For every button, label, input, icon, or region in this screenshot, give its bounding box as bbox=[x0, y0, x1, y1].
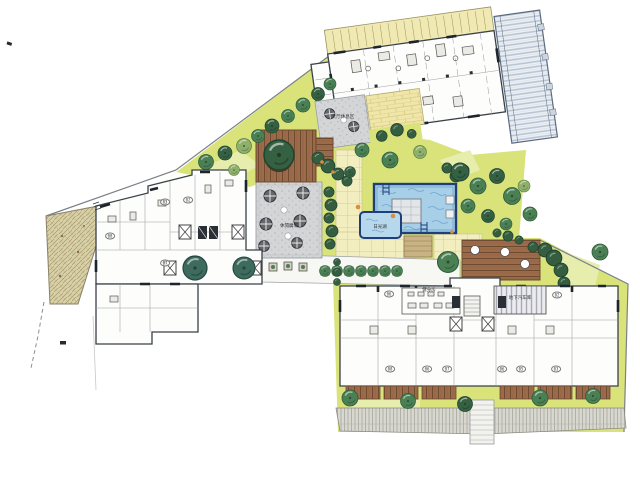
center-path bbox=[470, 400, 494, 444]
garage-ramp-label: 地下汽车库 bbox=[509, 297, 532, 302]
leisure-plaza bbox=[256, 182, 322, 258]
site-plan-drawing bbox=[0, 0, 640, 477]
unit-number: 02 bbox=[183, 197, 193, 204]
leisure-plaza-label: 休閒廣場 bbox=[280, 225, 298, 230]
unit-number: 08 bbox=[105, 233, 115, 240]
site-plan-canvas: 大厅休息区 休閒廣場 日光湖 健身房 地下汽车库 08 03 02 07 06 … bbox=[0, 0, 640, 477]
unit-number: 06 bbox=[422, 366, 432, 373]
unit-number: 02 bbox=[552, 292, 562, 299]
kids-pool-label: 日光湖 bbox=[373, 226, 387, 231]
stone-slope bbox=[46, 206, 98, 304]
unit-number: 06 bbox=[384, 291, 394, 298]
unit-number: 07 bbox=[442, 366, 452, 373]
unit-number: 05 bbox=[516, 366, 526, 373]
unit-number: 03 bbox=[551, 366, 561, 373]
gym-label: 健身房 bbox=[422, 289, 436, 294]
unit-number: 08 bbox=[385, 366, 395, 373]
unit-number: 07 bbox=[160, 260, 170, 267]
unit-number: 06 bbox=[497, 366, 507, 373]
steps-platform bbox=[404, 236, 432, 257]
clubhouse-ramp bbox=[494, 10, 557, 143]
left-building bbox=[96, 170, 262, 344]
unit-number: 03 bbox=[160, 199, 170, 206]
lobby-terrace-label: 大厅休息区 bbox=[332, 116, 355, 121]
square-planters bbox=[269, 262, 307, 271]
